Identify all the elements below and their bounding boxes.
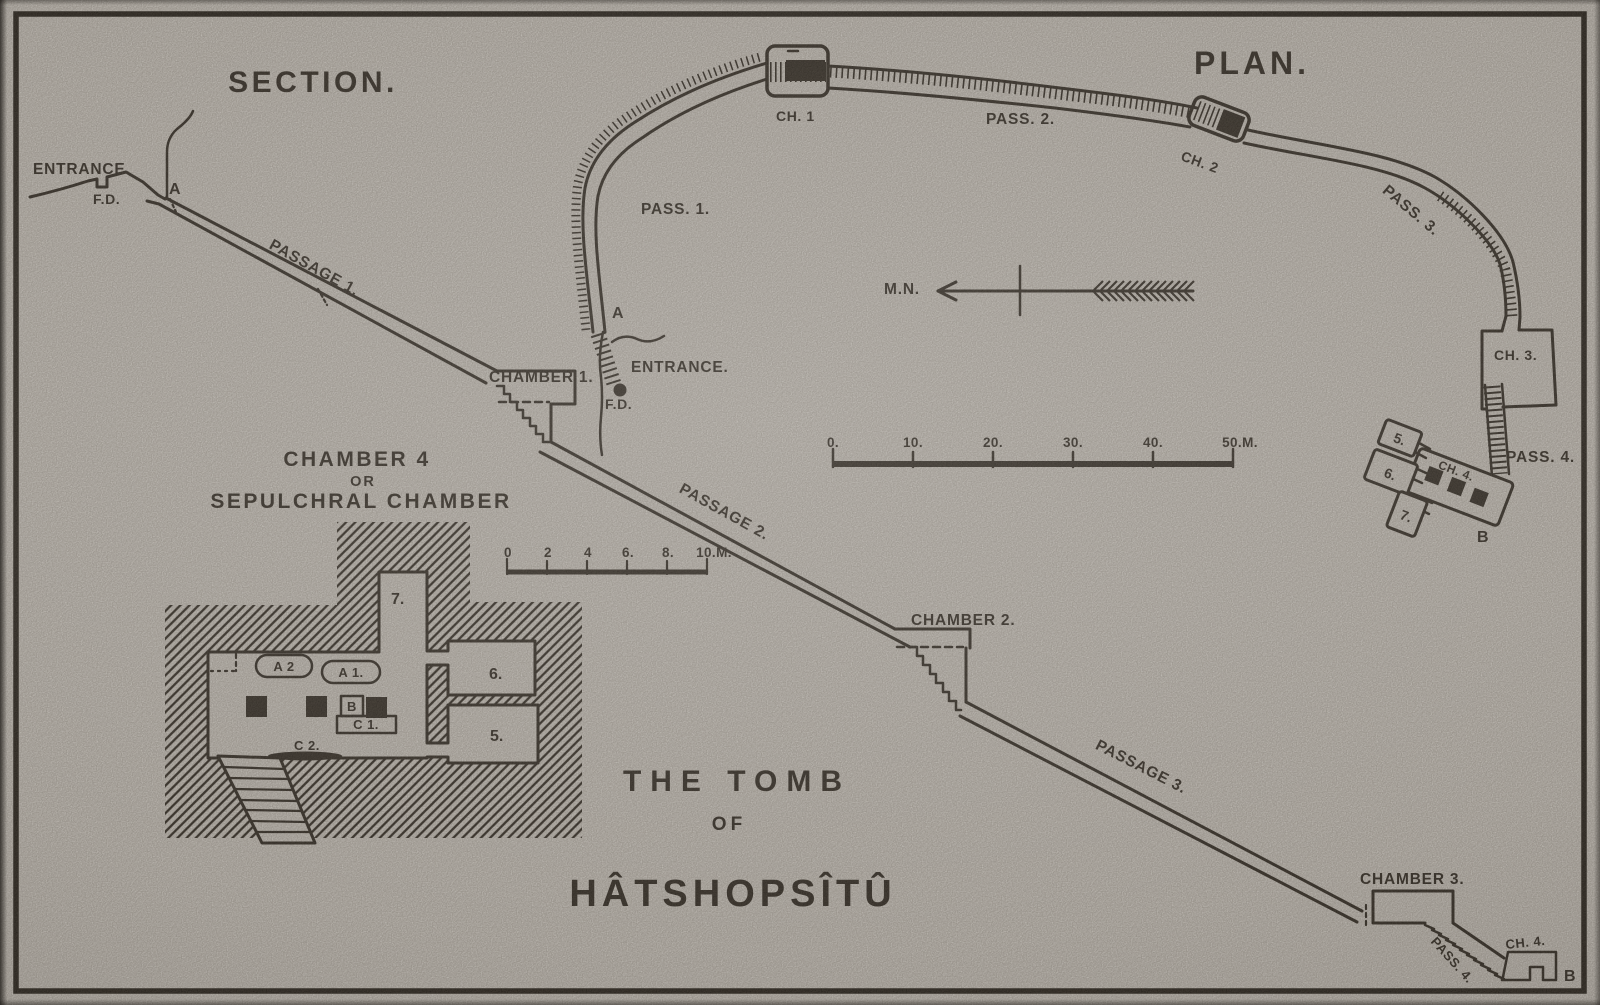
- scanned-tomb-diagram: SECTION. ENTRANCE. F.D. A PASSAGE 1. CHA…: [0, 0, 1600, 1005]
- paper-grain: [0, 0, 1600, 1005]
